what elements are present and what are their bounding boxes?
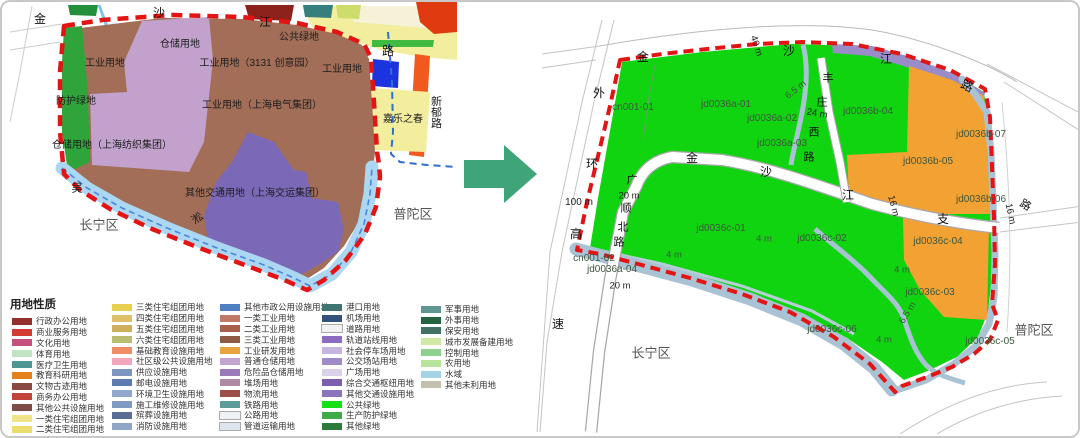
legend-swatch [322, 347, 342, 354]
legend-swatch [322, 336, 342, 343]
planning-map-figure: 金沙江路仓储用地公共绿地工业用地工业用地（3131 创意园）工业用地防护绿地工业… [0, 0, 1080, 438]
blue-block [372, 59, 399, 88]
left-map [10, 2, 457, 290]
legend-item: 邮电设施用地 [112, 378, 213, 389]
legend-swatch [421, 317, 441, 324]
legend-item: 堆场用地 [220, 378, 329, 389]
legend-swatch [220, 390, 240, 397]
legend-item: 文化用地 [12, 338, 104, 349]
legend-item: 教育科研用地 [12, 370, 104, 381]
legend-item: 其他公共设施用地 [12, 402, 104, 413]
legend-swatch [12, 329, 32, 336]
legend-item: 其他未利用地 [421, 380, 513, 391]
legend-swatch [12, 383, 32, 390]
legend-item: 危险品仓储用地 [220, 367, 329, 378]
legend-item: 文物古迹用地 [12, 381, 104, 392]
legend-swatch [112, 304, 132, 311]
legend-swatch [322, 358, 342, 365]
legend-swatch [112, 423, 132, 430]
legend: 用地性质 行政办公用地商业服务用地文化用地体育用地医疗卫生用地教育科研用地文物古… [10, 296, 535, 436]
legend-swatch [220, 325, 240, 332]
legend-item: 三类住宅组团用地 [112, 302, 213, 313]
legend-item: 其他市政公用设施用地 [220, 302, 329, 313]
legend-label: 管道运输用地 [244, 420, 295, 432]
legend-swatch [421, 306, 441, 313]
legend-item: 铁路用地 [220, 399, 329, 410]
legend-label: 其他未利用地 [445, 379, 496, 391]
legend-item: 商业服务用地 [12, 327, 104, 338]
legend-item: 工业研发用地 [220, 345, 329, 356]
legend-item: 道路用地 [322, 324, 414, 335]
legend-swatch [12, 318, 32, 325]
legend-item: 军事用地 [421, 304, 513, 315]
legend-swatch [322, 304, 342, 311]
legend-item: 基础教育设施用地 [112, 345, 213, 356]
legend-swatch [112, 401, 132, 408]
legend-swatch [12, 415, 32, 422]
legend-column-2: 三类住宅组团用地四类住宅组团用地五类住宅组团用地六类住宅组团用地基础教育设施用地… [112, 302, 213, 432]
legend-item: 其他绿地 [322, 421, 414, 432]
legend-swatch [421, 338, 441, 345]
legend-swatch [220, 315, 240, 322]
legend-swatch [220, 358, 240, 365]
legend-swatch [322, 412, 342, 419]
legend-swatch [322, 369, 342, 376]
legend-swatch [12, 339, 32, 346]
legend-item: 施工维修设施用地 [112, 399, 213, 410]
legend-swatch [322, 423, 342, 430]
legend-item: 保安用地 [421, 326, 513, 337]
legend-item: 轨道站线用地 [322, 334, 414, 345]
legend-item: 综合交通枢纽用地 [322, 378, 414, 389]
legend-column-3: 其他市政公用设施用地一类工业用地二类工业用地三类工业用地工业研发用地普通仓储用地… [220, 302, 329, 432]
legend-item: 四类住宅组团用地 [112, 313, 213, 324]
legend-item: 二类工业用地 [220, 324, 329, 335]
legend-swatch [12, 350, 32, 357]
legend-swatch [220, 369, 240, 376]
transform-arrow-icon [464, 145, 537, 203]
legend-swatch [421, 349, 441, 356]
legend-item: 公路用地 [220, 410, 329, 421]
legend-swatch [12, 372, 32, 379]
legend-item: 三类工业用地 [220, 334, 329, 345]
legend-item: 社会停车场用地 [322, 345, 414, 356]
legend-item: 城市发展备建用地 [421, 336, 513, 347]
legend-column-4: 港口用地机场用地道路用地轨道站线用地社会停车场用地公交场站用地广场用地综合交通枢… [322, 302, 414, 432]
right-map [537, 20, 1080, 434]
legend-swatch [220, 379, 240, 386]
legend-item: 水域 [421, 369, 513, 380]
legend-item: 环境卫生设施用地 [112, 388, 213, 399]
legend-swatch [421, 360, 441, 367]
legend-column-1: 行政办公用地商业服务用地文化用地体育用地医疗卫生用地教育科研用地文物古迹用地商务… [12, 316, 104, 435]
legend-item: 公共绿地 [322, 399, 414, 410]
legend-swatch [12, 404, 32, 411]
legend-swatch [220, 336, 240, 343]
legend-item: 其他交通设施用地 [322, 388, 414, 399]
jialezhichun-block [370, 88, 430, 152]
legend-item: 机场用地 [322, 313, 414, 324]
legend-swatch [12, 393, 32, 400]
legend-item: 生产防护绿地 [322, 410, 414, 421]
legend-item: 一类工业用地 [220, 313, 329, 324]
legend-swatch [220, 401, 240, 408]
legend-swatch [12, 361, 32, 368]
legend-item: 管道运输用地 [220, 421, 329, 432]
legend-item: 体育用地 [12, 348, 104, 359]
legend-item: 农用地 [421, 358, 513, 369]
legend-item: 消防设施用地 [112, 421, 213, 432]
legend-swatch [322, 315, 342, 322]
legend-item: 二类住宅组团用地 [12, 424, 104, 435]
legend-swatch [112, 358, 132, 365]
legend-item: 公交场站用地 [322, 356, 414, 367]
legend-item: 殡葬设施用地 [112, 410, 213, 421]
legend-swatch [322, 325, 342, 332]
legend-item: 社区级公共设施用地 [112, 356, 213, 367]
legend-item: 广场用地 [322, 367, 414, 378]
legend-swatch [220, 423, 240, 430]
legend-swatch [322, 401, 342, 408]
legend-item: 一类住宅组团用地 [12, 413, 104, 424]
legend-item: 商务办公用地 [12, 392, 104, 403]
legend-item: 港口用地 [322, 302, 414, 313]
legend-swatch [421, 371, 441, 378]
legend-column-5: 军事用地外事用地保安用地城市发展备建用地控制用地农用地水域其他未利用地 [421, 304, 513, 390]
legend-swatch [421, 327, 441, 334]
legend-swatch [322, 390, 342, 397]
legend-swatch [112, 347, 132, 354]
legend-swatch [220, 347, 240, 354]
legend-swatch [112, 315, 132, 322]
legend-item: 医疗卫生用地 [12, 359, 104, 370]
legend-item: 行政办公用地 [12, 316, 104, 327]
legend-swatch [112, 379, 132, 386]
legend-swatch [220, 412, 240, 419]
legend-swatch [112, 336, 132, 343]
legend-item: 控制用地 [421, 347, 513, 358]
legend-swatch [112, 412, 132, 419]
legend-label: 消防设施用地 [136, 420, 187, 432]
legend-item: 五类住宅组团用地 [112, 324, 213, 335]
legend-swatch [112, 369, 132, 376]
legend-swatch [322, 379, 342, 386]
legend-swatch [421, 381, 441, 388]
legend-title: 用地性质 [10, 296, 56, 312]
legend-item: 六类住宅组团用地 [112, 334, 213, 345]
legend-label: 二类住宅组团用地 [36, 423, 104, 435]
green-block [68, 5, 98, 16]
legend-label: 其他绿地 [346, 420, 380, 432]
legend-swatch [112, 325, 132, 332]
legend-item: 普通仓储用地 [220, 356, 329, 367]
legend-item: 供应设施用地 [112, 367, 213, 378]
legend-item: 外事用地 [421, 315, 513, 326]
legend-swatch [220, 304, 240, 311]
legend-swatch [112, 390, 132, 397]
legend-swatch [12, 426, 32, 433]
legend-item: 物流用地 [220, 388, 329, 399]
